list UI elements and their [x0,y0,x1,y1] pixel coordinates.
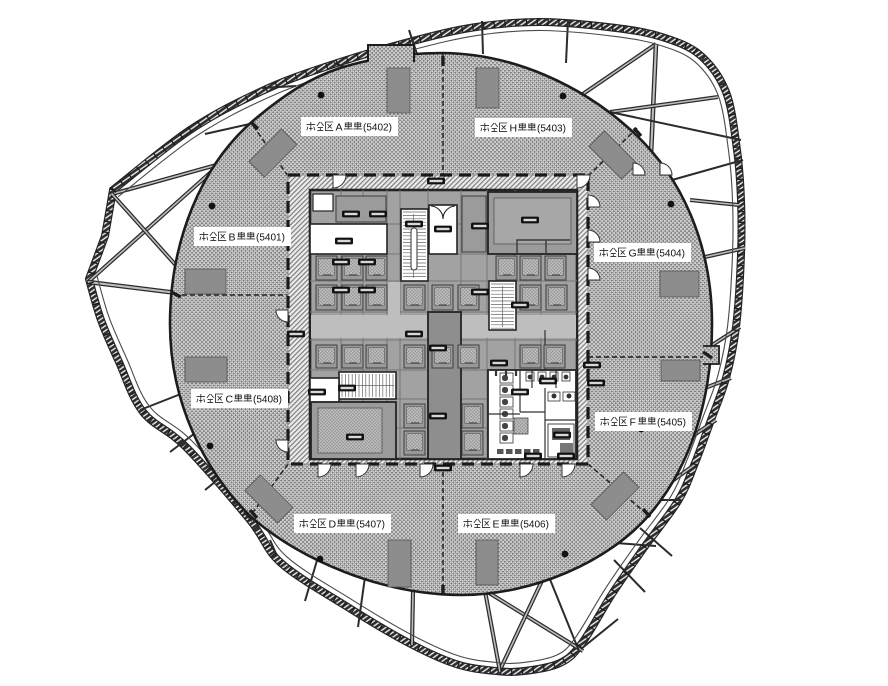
svg-text:(5404): (5404) [656,249,685,260]
svg-text:(5406): (5406) [520,520,549,531]
svg-text:C: C [226,394,234,406]
svg-text:G: G [629,248,637,260]
svg-text:(5401): (5401) [256,233,285,244]
svg-text:D: D [329,519,337,531]
svg-text:(5407): (5407) [356,520,385,531]
svg-text:(5405): (5405) [657,418,686,429]
svg-text:(5402): (5402) [363,123,392,134]
svg-text:(5408): (5408) [253,395,282,406]
svg-text:H: H [510,123,518,135]
svg-text:E: E [493,519,500,531]
svg-text:B: B [229,232,236,244]
svg-text:(5403): (5403) [537,124,566,135]
svg-text:F: F [630,417,636,429]
svg-text:A: A [336,122,343,134]
